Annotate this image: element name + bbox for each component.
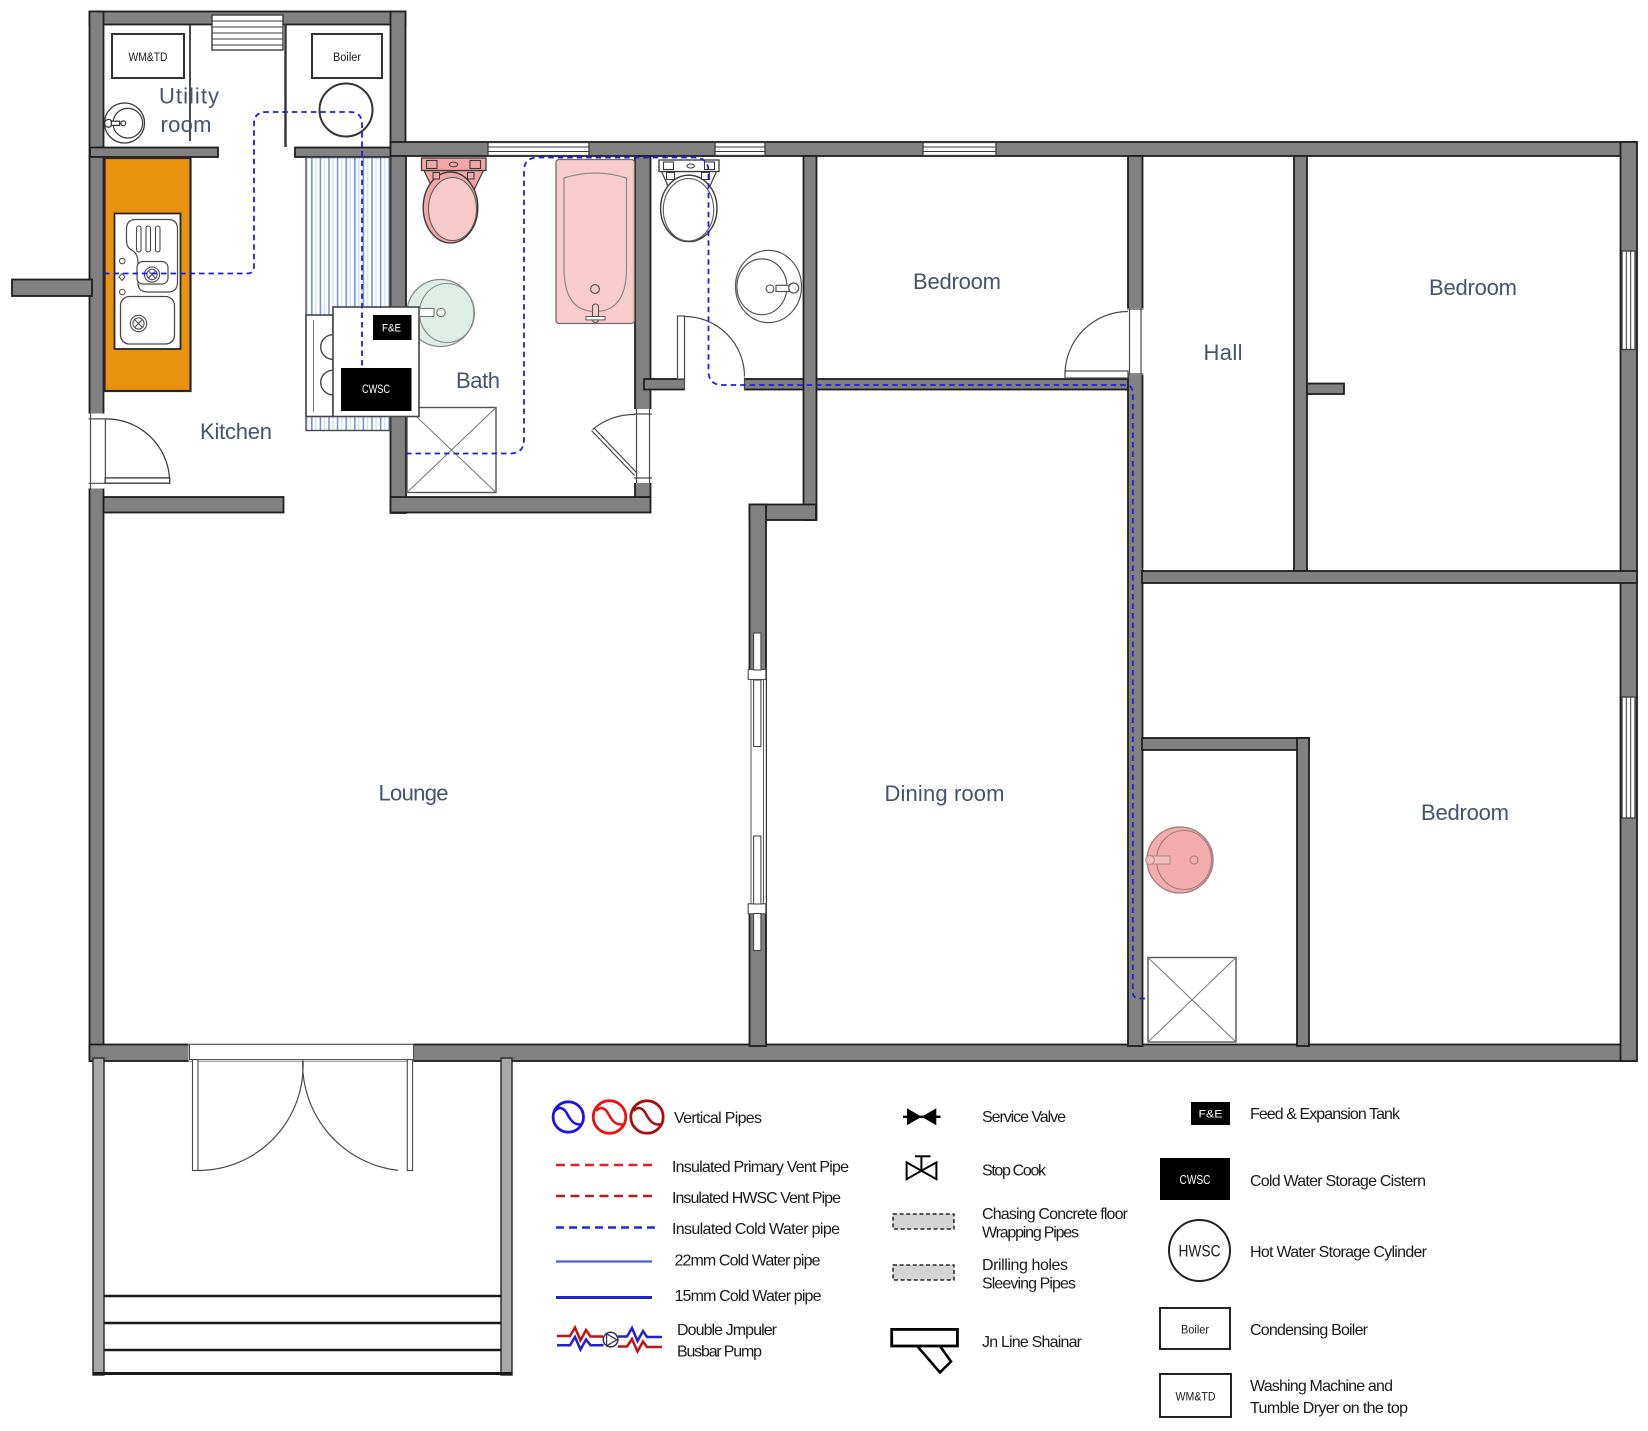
svg-text:HWSC: HWSC: [1179, 1243, 1221, 1261]
svg-text:Busbar Pump: Busbar Pump: [677, 1344, 762, 1361]
svg-text:Hall: Hall: [1204, 340, 1243, 365]
svg-text:Service Valve: Service Valve: [982, 1109, 1066, 1126]
svg-text:Lounge: Lounge: [379, 781, 449, 806]
svg-text:Insulated HWSC Vent Pipe: Insulated HWSC Vent Pipe: [672, 1190, 841, 1207]
svg-text:Feed & Expansion Tank: Feed & Expansion Tank: [1250, 1106, 1401, 1123]
svg-text:Drilling holes: Drilling holes: [982, 1257, 1068, 1274]
svg-text:Cold Water Storage Cistern: Cold Water Storage Cistern: [1250, 1173, 1426, 1190]
svg-text:CWSC: CWSC: [1180, 1173, 1211, 1187]
svg-text:22mm Cold Water pipe: 22mm Cold Water pipe: [675, 1253, 821, 1270]
svg-text:Boiler: Boiler: [333, 52, 361, 64]
svg-text:Dining room: Dining room: [885, 781, 1005, 806]
svg-text:WM&TD: WM&TD: [1176, 1390, 1216, 1404]
svg-text:Bedroom: Bedroom: [913, 269, 1001, 294]
svg-text:CWSC: CWSC: [362, 384, 390, 396]
svg-text:room: room: [161, 112, 212, 137]
svg-text:Stop Cook: Stop Cook: [982, 1163, 1047, 1180]
svg-text:Boiler: Boiler: [1181, 1323, 1209, 1337]
svg-text:Bedroom: Bedroom: [1421, 800, 1509, 825]
svg-text:Washing Machine and: Washing Machine and: [1250, 1378, 1393, 1395]
svg-text:Condensing Boiler: Condensing Boiler: [1250, 1322, 1369, 1339]
svg-text:Bedroom: Bedroom: [1429, 275, 1517, 300]
svg-text:F&E: F&E: [1199, 1109, 1223, 1121]
svg-text:Sleeving Pipes: Sleeving Pipes: [982, 1276, 1076, 1293]
svg-text:Double Jmpuler: Double Jmpuler: [677, 1322, 778, 1339]
svg-text:Insulated Primary Vent Pipe: Insulated Primary Vent Pipe: [672, 1159, 849, 1176]
svg-text:F&E: F&E: [382, 323, 401, 335]
svg-text:Vertical Pipes: Vertical Pipes: [674, 1110, 762, 1127]
svg-text:Tumble Dryer on the top: Tumble Dryer on the top: [1250, 1400, 1408, 1417]
svg-text:Jn Line Shainar: Jn Line Shainar: [982, 1334, 1083, 1351]
svg-text:Bath: Bath: [456, 368, 500, 393]
svg-text:WM&TD: WM&TD: [129, 52, 168, 64]
svg-text:15mm Cold Water pipe: 15mm Cold Water pipe: [675, 1288, 822, 1305]
svg-text:Insulated Cold Water pipe: Insulated Cold Water pipe: [672, 1221, 840, 1238]
svg-text:Chasing Concrete floor: Chasing Concrete floor: [982, 1206, 1129, 1223]
svg-text:Wrapping Pipes: Wrapping Pipes: [982, 1225, 1079, 1242]
svg-text:Hot Water Storage Cylinder: Hot Water Storage Cylinder: [1250, 1244, 1428, 1261]
svg-text:Utility: Utility: [159, 84, 219, 109]
svg-text:Kitchen: Kitchen: [200, 419, 272, 444]
